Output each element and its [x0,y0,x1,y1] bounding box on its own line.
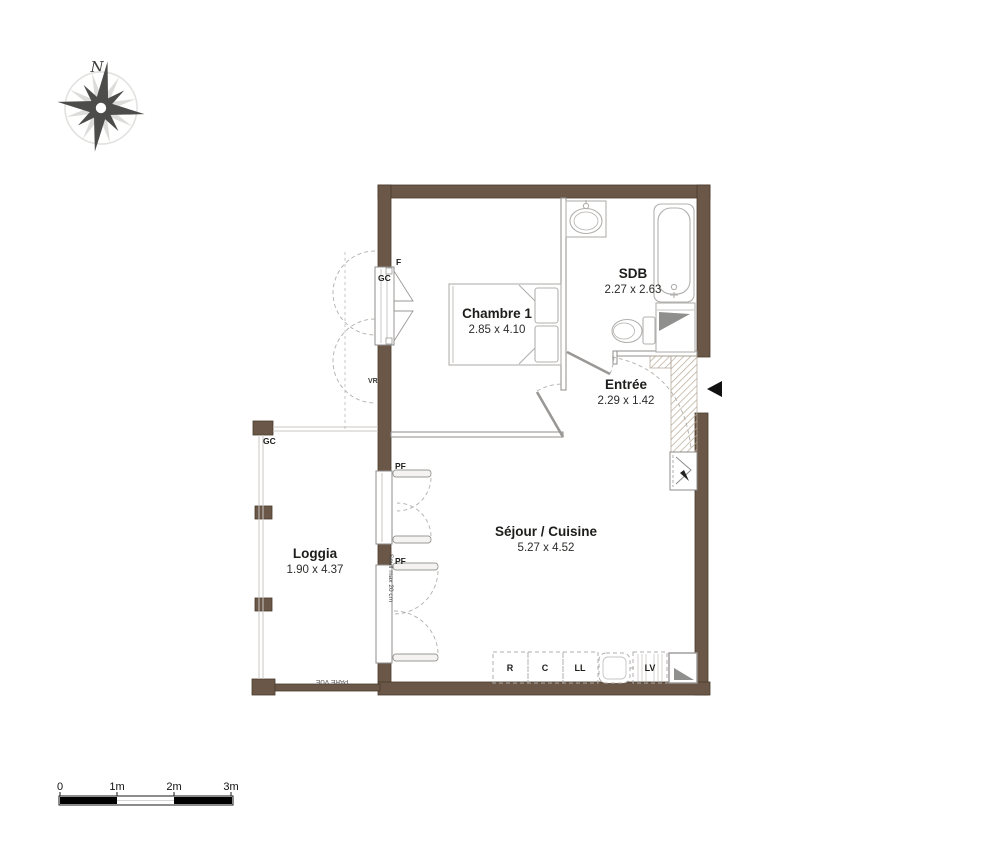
window-f-chambre [333,251,413,430]
loggia-post-4 [252,679,275,695]
scale-segment-1 [60,797,117,804]
toilet [612,317,655,344]
scale-tick-1m: 1m [109,781,124,793]
floor-plan-page: N [0,0,1000,857]
tag-vr: VR [368,378,378,385]
scale-tick-0: 0 [57,781,63,793]
tag-pare-vue: PARE VUE [315,678,348,685]
partition-chambre-sejour [391,432,563,437]
kitchen-sink [599,653,634,683]
bed-pillow-top [535,288,558,323]
wall-left-upper [378,185,391,268]
pf2-swing-arcs [394,571,438,653]
tag-pf-lower: PF [395,556,406,566]
pf1-leaf-bottom [393,536,431,543]
scale-tick-3m: 3m [223,781,238,793]
washbasin [566,200,606,237]
entrance-arrow-icon [707,381,722,397]
entrance-zone [650,356,722,452]
label-sejour-name: Séjour / Cuisine [495,524,598,539]
label-chambre1-name: Chambre 1 [462,306,532,321]
kitchen-corner-shaft [669,653,697,683]
floor-plan-drawing: N [0,0,1000,857]
technical-box [670,452,697,490]
label-sejour-dims: 5.27 x 4.52 [518,542,575,554]
compass-rose-icon: N [51,55,151,157]
window-pf-lower [376,563,438,663]
wall-left-mid [378,345,391,472]
scale-tick-2m: 2m [166,781,181,793]
label-entree-name: Entrée [605,377,648,392]
entrance-hatched-strip [650,356,671,368]
tag-window-f: F [396,257,401,267]
scale-bar: 0 1m 2m 3m [57,781,239,805]
label-loggia-name: Loggia [293,546,338,561]
tag-pf-upper: PF [395,461,406,471]
tag-appliance-ll: LL [575,663,586,673]
window-pf-upper [376,470,431,544]
exterior-walls [252,185,710,695]
compass-hub [94,101,108,115]
sdb-shaft [656,303,695,352]
room-labels: Chambre 1 2.85 x 4.10 SDB 2.27 x 2.63 En… [287,266,662,576]
wall-right-upper [697,185,710,357]
label-sdb-name: SDB [619,266,648,281]
wall-top [378,185,710,198]
label-sdb-dims: 2.27 x 2.63 [605,284,662,296]
label-chambre1-dims: 2.85 x 4.10 [469,324,526,336]
label-entree-dims: 2.29 x 1.42 [598,395,655,407]
door-leaf-sdb [567,352,610,374]
door-arc-chambre [537,384,562,391]
tag-appliance-r: R [507,663,514,673]
wall-bottom [378,682,710,695]
casement-swing-lower [394,311,413,341]
pf1-leaf-top [393,470,431,477]
tag-appliance-lv: LV [645,663,656,673]
entrance-hatched-wall [671,356,697,452]
shutter-swing-arcs [333,251,375,430]
wall-left-lower [378,662,391,682]
scale-segment-3 [174,797,232,804]
loggia-post-1 [253,421,273,435]
door-leaf-chambre [537,392,563,437]
tag-gc-loggia: GC [263,436,276,446]
partition-chambre-sdb [561,198,566,390]
kitchen-row [493,652,697,683]
tag-seuil: Seuil max 20 cm [387,554,394,602]
label-loggia-dims: 1.90 x 4.37 [287,564,344,576]
pf2-leaf-bottom [393,654,438,661]
pf1-swing-arcs [397,478,431,536]
tag-gc-chambre: GC [378,273,391,283]
casement-swing-upper [394,271,413,301]
tag-appliance-c: C [542,663,549,673]
bed-pillow-bottom [535,326,558,362]
